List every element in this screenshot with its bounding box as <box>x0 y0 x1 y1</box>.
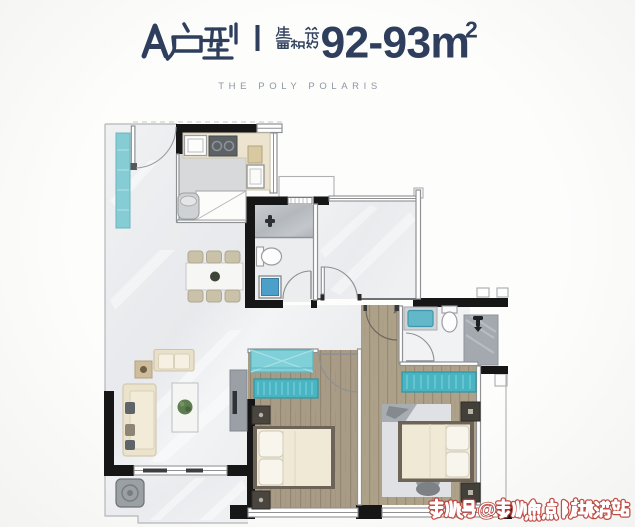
svg-text:@: @ <box>478 499 497 521</box>
